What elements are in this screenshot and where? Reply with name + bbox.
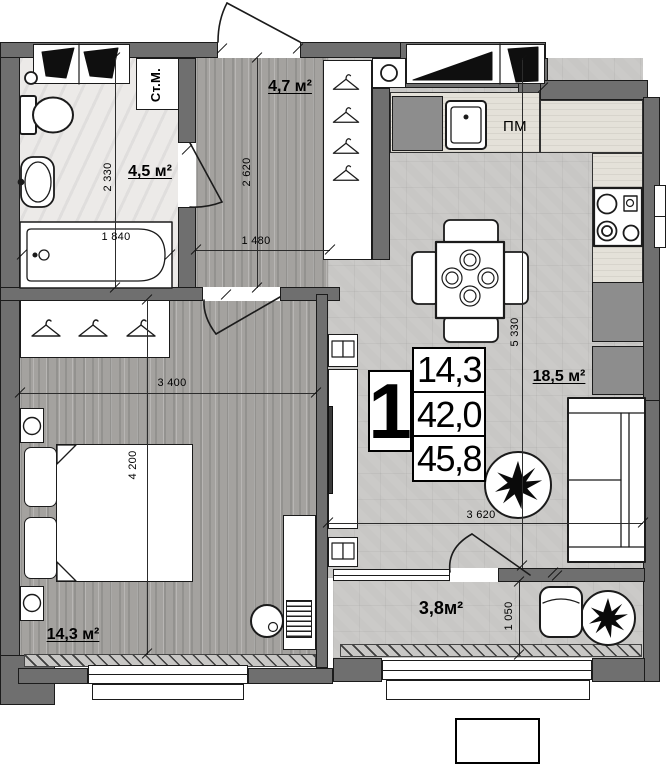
bathtub-dim: 1 840	[91, 230, 141, 244]
hanger-icons-wardrobe	[32, 320, 155, 336]
lamp-icon-bottom	[24, 595, 41, 612]
total-area-value: 45,8	[412, 435, 486, 482]
bathroom-height-dim: 2 330	[101, 152, 115, 202]
kitchen-height-dim: 5 330	[508, 305, 522, 359]
bedroom-height-dim: 4 200	[126, 440, 140, 490]
apartment-number: 1	[368, 370, 412, 452]
bedroom-door-icon	[204, 297, 280, 334]
dim-line-living-h	[328, 523, 643, 524]
living-area-value: 42,0	[412, 391, 486, 438]
desk-chair-icon	[251, 605, 283, 637]
sofa-icon	[568, 398, 645, 562]
washing-machine-label: Ст.М.	[149, 60, 165, 110]
stool-icon	[381, 65, 397, 81]
dim-line-bathroom-v	[115, 58, 116, 288]
bedroom-area-label: 14,3 м²	[36, 626, 110, 644]
dim-line-hall-h	[196, 250, 330, 251]
bedroom-width-dim: 3 400	[147, 376, 197, 390]
toilet-icon	[20, 96, 73, 134]
room-area-value: 14,3	[412, 347, 486, 394]
dishwasher-label: ПМ	[497, 120, 533, 138]
hall-width-dim: 1 480	[231, 234, 281, 248]
legend-box	[455, 718, 540, 764]
vent-glyphs-bathroom	[42, 48, 118, 78]
balcony-chair-icon	[540, 587, 582, 637]
dim-line-bedroom-h	[20, 393, 316, 394]
bathroom-area-label: 4,5 м²	[118, 163, 182, 181]
apartment-area-table: 14,3 42,0 45,8	[412, 347, 486, 482]
plant-icon-balcony	[581, 591, 635, 645]
kitchen-sink-icon	[446, 101, 486, 149]
balcony-area-label: 3,8м²	[404, 598, 478, 619]
hall-area-label: 4,7 м²	[258, 78, 322, 96]
apartment-number-value: 1	[368, 372, 411, 450]
hall-height-dim: 2 620	[240, 147, 254, 197]
vent-glyphs-kitchen	[413, 47, 538, 82]
floor-plan: 1 14,3 42,0 45,8 2 330 4,5 м² 1 840 Ст.М…	[0, 0, 666, 769]
entry-door-icon	[218, 3, 300, 42]
stove-icon	[594, 188, 642, 246]
lamp-icon-top	[24, 418, 41, 435]
living-width-dim: 3 620	[456, 508, 506, 522]
dim-line-bedroom-v	[147, 300, 148, 655]
balcony-depth-dim: 1 050	[502, 591, 516, 641]
bathroom-valve-icon	[25, 72, 37, 84]
book-icons	[332, 341, 354, 559]
kitchen-area-label: 18,5 м²	[524, 368, 594, 386]
bathroom-door-icon	[190, 143, 222, 207]
sink-icon	[19, 157, 55, 207]
dim-line-balcony-v	[519, 580, 520, 656]
blanket-fold-icons	[57, 445, 76, 581]
hanger-icons-closet	[333, 75, 358, 180]
